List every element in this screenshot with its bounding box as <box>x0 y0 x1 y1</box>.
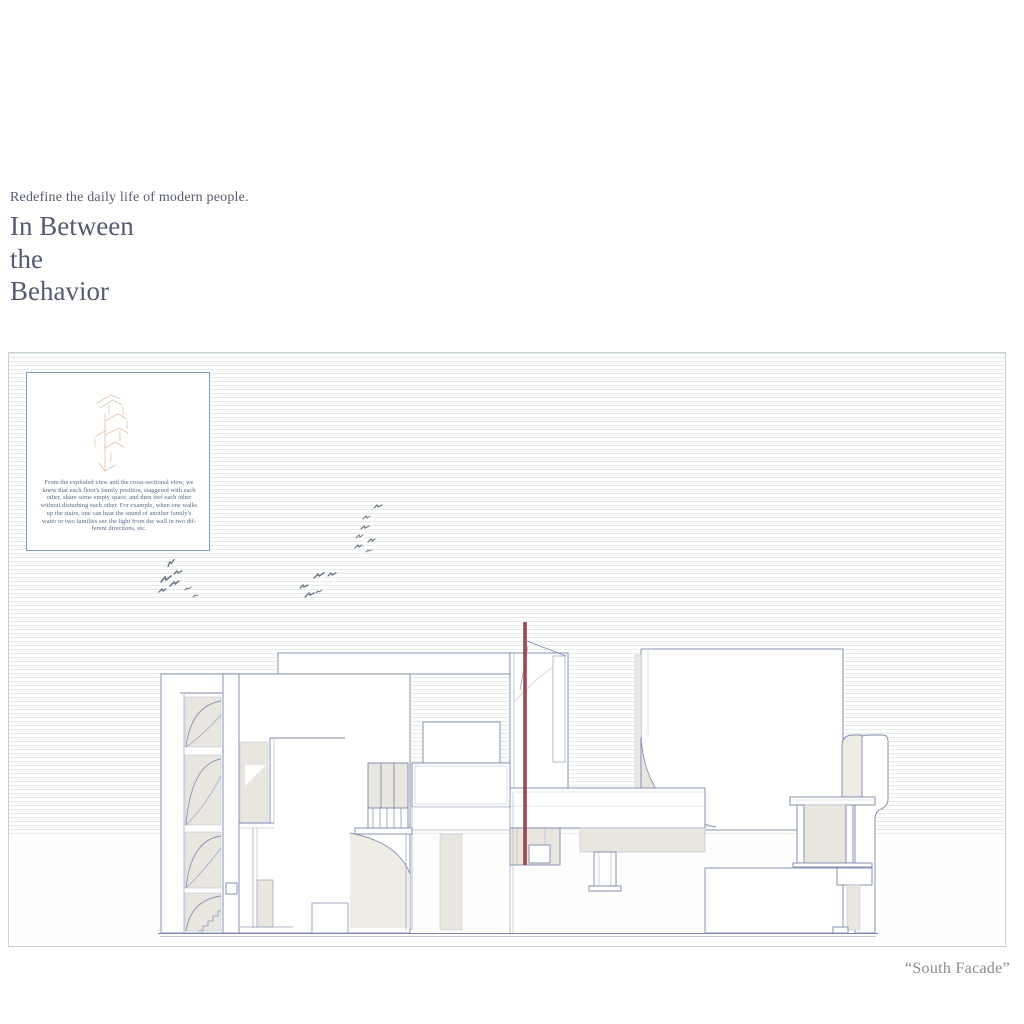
facade-building <box>158 622 888 937</box>
stair-niche <box>185 832 221 888</box>
bird-flock-left-icon <box>159 559 198 597</box>
south-facade-drawing <box>0 0 1024 1024</box>
middle-tower <box>510 641 568 793</box>
floor-slab <box>510 788 705 828</box>
bird-flock-middle-icon <box>300 573 336 597</box>
rear-roof-band <box>278 653 510 674</box>
red-flag-pole <box>523 622 527 865</box>
balcony-slab <box>790 797 875 805</box>
ground-line <box>158 934 878 937</box>
wall-opening <box>226 883 237 894</box>
rounded-pillar <box>842 735 862 797</box>
pole-base-structure <box>510 828 560 865</box>
stair-niche <box>185 697 221 747</box>
ground-door <box>312 903 348 933</box>
drawing-caption: “South Facade” <box>905 960 1010 978</box>
terrace-deck <box>580 828 705 852</box>
pedestal <box>589 852 621 891</box>
lower-right-block <box>705 868 872 933</box>
stair-niche <box>185 893 221 931</box>
stair-niches <box>185 697 221 931</box>
bird-flock-upper-icon <box>355 505 382 552</box>
stair-niche <box>185 755 221 825</box>
